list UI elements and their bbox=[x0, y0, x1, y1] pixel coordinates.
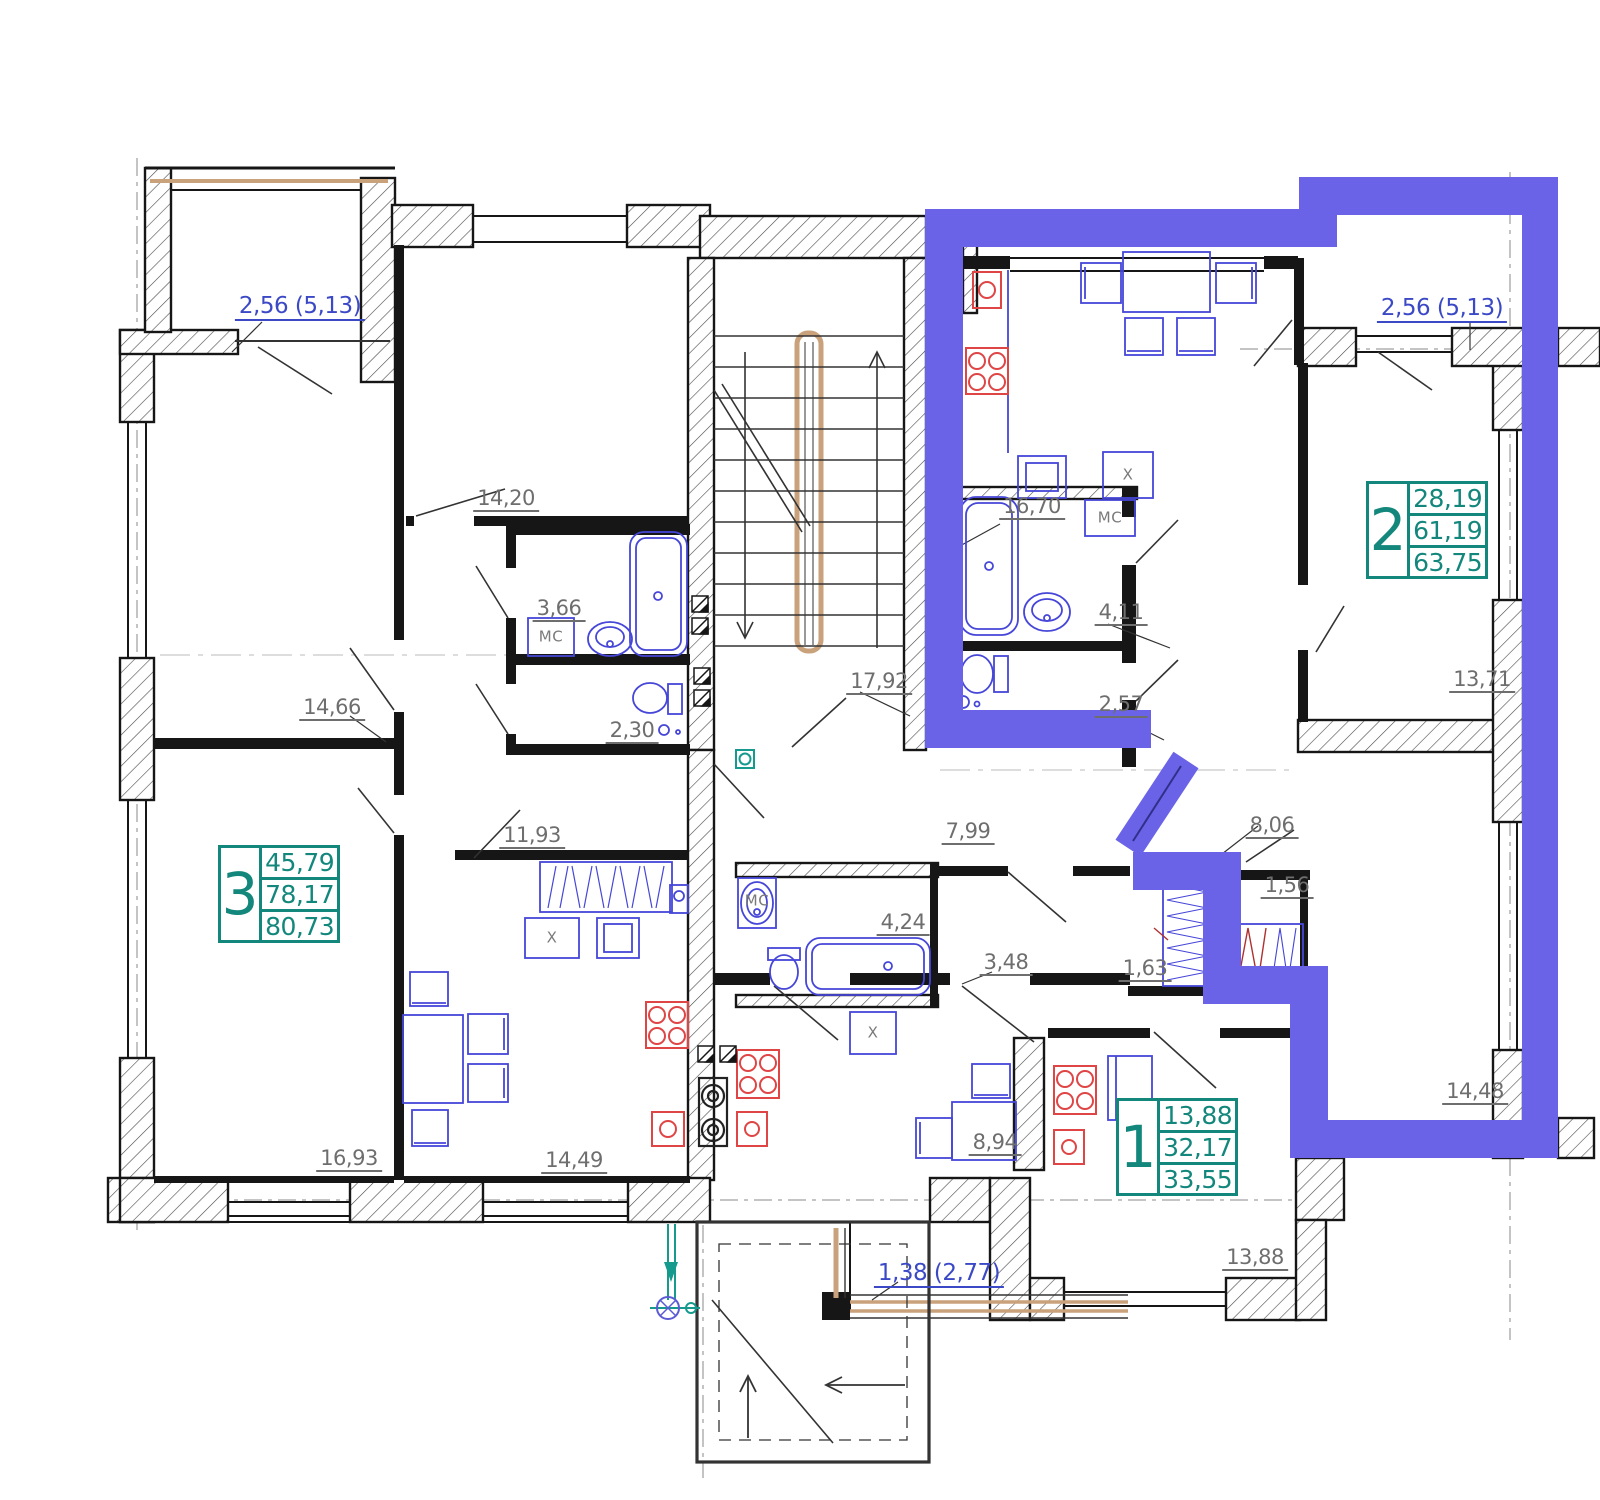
rooms-area: 13,88 bbox=[1160, 1101, 1235, 1133]
entrance-porch bbox=[697, 1222, 929, 1462]
balcony-area-label: 2,56 (5,13) bbox=[1377, 296, 1507, 323]
room-area-label: 2,30 bbox=[606, 719, 659, 744]
living-area: 32,17 bbox=[1160, 1133, 1235, 1165]
apartment-number: 3 bbox=[221, 848, 262, 940]
room-area-label: 14,49 bbox=[541, 1149, 607, 1174]
room-area-label: 4,11 bbox=[1095, 601, 1148, 626]
doors-and-leaders bbox=[232, 320, 1470, 1300]
room-area-label: 16,70 bbox=[999, 495, 1065, 520]
washing-machine-label: МС bbox=[1098, 511, 1122, 526]
living-area: 78,17 bbox=[262, 880, 337, 912]
room-area-label: 11,93 bbox=[499, 824, 565, 849]
room-area-label: 8,94 bbox=[969, 1131, 1022, 1156]
rooms-area: 45,79 bbox=[262, 848, 337, 880]
total-area: 33,55 bbox=[1160, 1165, 1235, 1194]
fridge-label: X bbox=[868, 1026, 879, 1041]
room-area-label: 3,48 bbox=[980, 951, 1033, 976]
balcony-area-label: 1,38 (2,77) bbox=[874, 1261, 1004, 1288]
room-area-label: 14,66 bbox=[299, 696, 365, 721]
rooms-area: 28,19 bbox=[1410, 484, 1485, 516]
washing-machine-label: МС bbox=[745, 894, 769, 909]
room-area-label: 8,06 bbox=[1246, 814, 1299, 839]
room-area-label: 1,63 bbox=[1119, 957, 1172, 982]
room-area-label: 7,99 bbox=[942, 820, 995, 845]
apartment-number: 2 bbox=[1369, 484, 1410, 576]
apartment-1-info-box: 1 13,88 32,17 33,55 bbox=[1116, 1098, 1238, 1196]
axis-lines bbox=[108, 158, 1596, 1478]
room-area-label: 14,48 bbox=[1442, 1080, 1508, 1105]
apartment-2-info-box: 2 28,19 61,19 63,75 bbox=[1366, 481, 1488, 579]
room-area-label: 17,92 bbox=[846, 670, 912, 695]
furniture-fixtures bbox=[403, 252, 1303, 1160]
room-area-label: 1,56 bbox=[1261, 874, 1314, 899]
room-area-label: 3,66 bbox=[533, 597, 586, 622]
room-area-label: 4,24 bbox=[877, 911, 930, 936]
apartment-number: 1 bbox=[1119, 1101, 1160, 1193]
total-area: 80,73 bbox=[262, 912, 337, 941]
room-area-label: 13,88 bbox=[1222, 1246, 1288, 1271]
apartment-3-info-box: 3 45,79 78,17 80,73 bbox=[218, 845, 340, 943]
living-area: 61,19 bbox=[1410, 516, 1485, 548]
room-area-label: 2,57 bbox=[1095, 693, 1148, 718]
fridge-label: X bbox=[547, 931, 558, 946]
washing-machine-label: МС bbox=[539, 630, 563, 645]
total-area: 63,75 bbox=[1410, 548, 1485, 577]
balcony-area-label: 2,56 (5,13) bbox=[235, 294, 365, 321]
floor-plan-drawing bbox=[0, 0, 1600, 1500]
fridge-label: X bbox=[1123, 468, 1134, 483]
room-area-label: 13,71 bbox=[1449, 668, 1515, 693]
room-area-label: 16,93 bbox=[316, 1147, 382, 1172]
room-area-label: 14,20 bbox=[473, 487, 539, 512]
floor-plan-page: { "colors": { "highlight_purple": "#6a63… bbox=[0, 0, 1600, 1500]
